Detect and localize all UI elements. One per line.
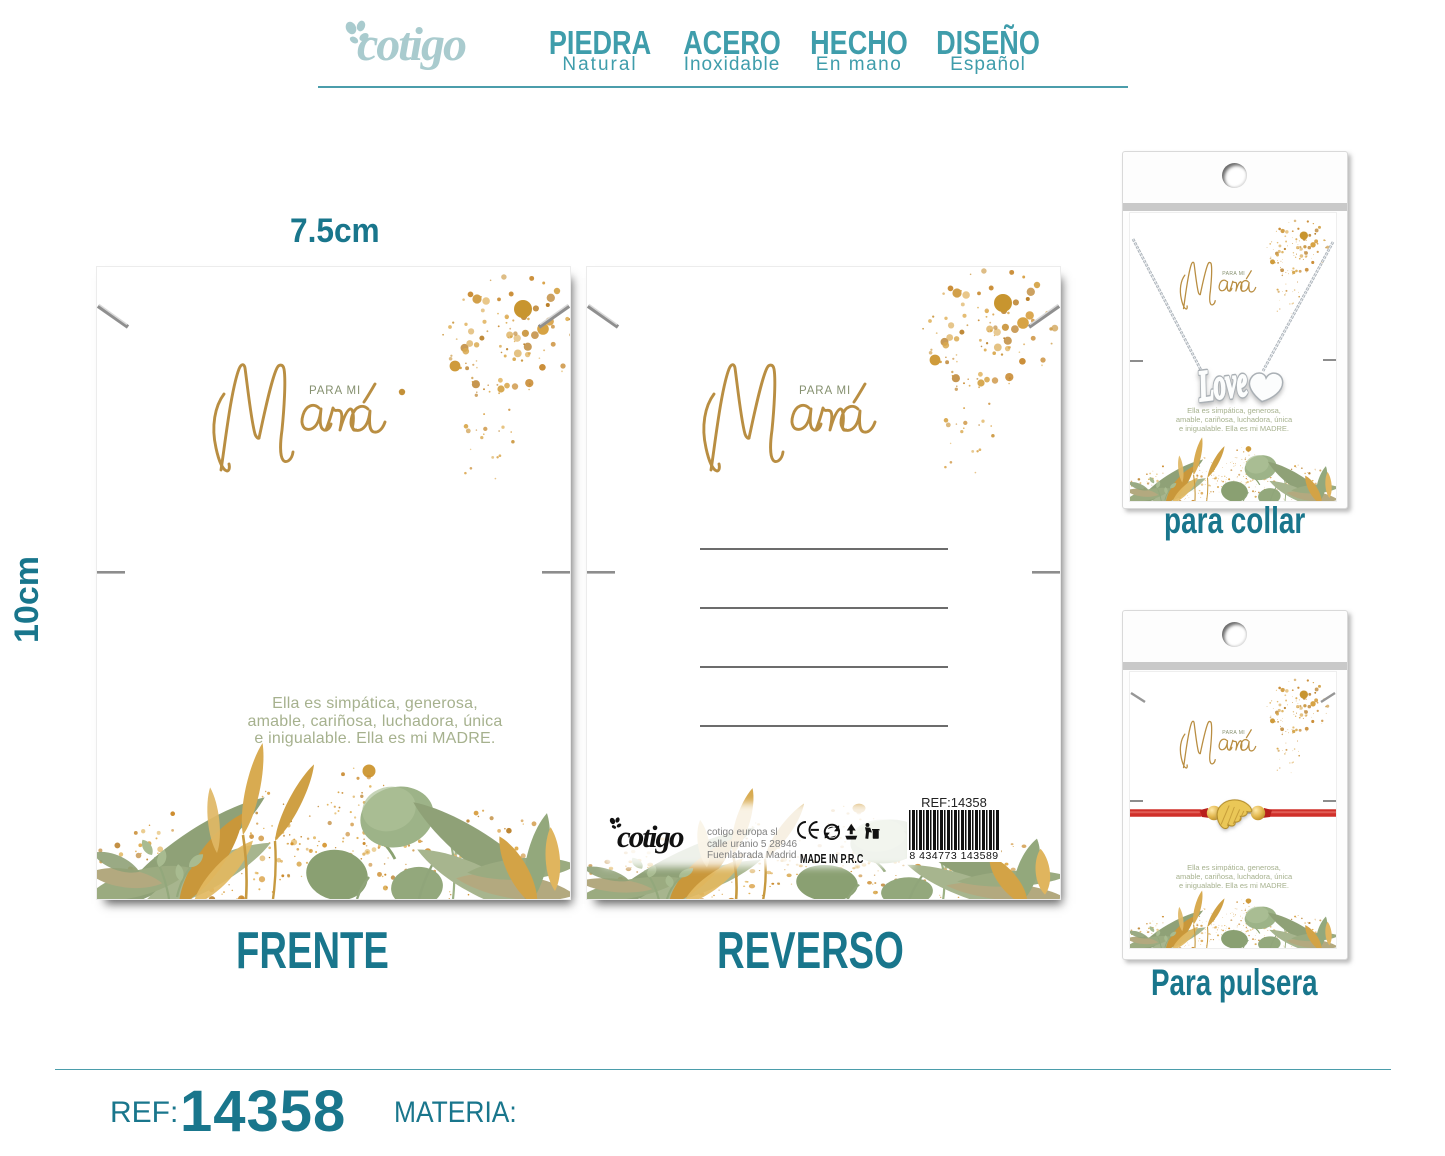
svg-text:Ella es simpática, generosa,: Ella es simpática, generosa, [1187,406,1281,415]
svg-text:e inigualable. Ella es mi MADR: e inigualable. Ella es mi MADRE. [1179,424,1289,433]
svg-text:amable, cariñosa, luchadora, ú: amable, cariñosa, luchadora, única [1176,415,1293,424]
svg-text:Ella es simpática, generosa,: Ella es simpática, generosa, [1187,863,1281,872]
svg-text:Love: Love [1195,356,1251,411]
svg-text:amable, cariñosa, luchadora, ú: amable, cariñosa, luchadora, única [1176,872,1293,881]
svg-text:e inigualable. Ella es mi MADR: e inigualable. Ella es mi MADRE. [1179,881,1289,890]
